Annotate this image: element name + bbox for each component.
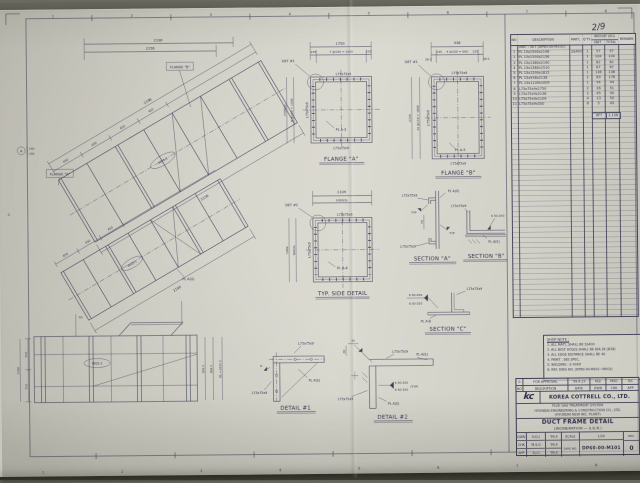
flange-a-det-callout: DET #1 xyxy=(282,59,295,63)
detail-2-dim-top: 30 xyxy=(351,339,355,343)
rev-value: 0 xyxy=(624,441,639,456)
flange-b-left-chain-dim: 12 @150 = 1800 xyxy=(416,105,420,131)
page-number-handwritten: 2/9 xyxy=(591,22,606,33)
detail-1-angle-left-label: L75x75x9 xyxy=(252,391,268,395)
title-block: 0 FOR APPROVAL '99.4.23 KDJ MSG SJC NO D… xyxy=(515,377,640,456)
flange-b-angle-bottom-label: L75x75x9 xyxy=(450,161,466,165)
scale-label: SCALE xyxy=(562,432,580,439)
flange-a-left-chain-dim: 8 @150 = 1200 xyxy=(290,98,294,122)
project-block: FLUE GAS TREATMENT SYSTEM HYUNDAI ENGINE… xyxy=(517,403,639,419)
section-c: 6 50-250 6 50-250 L75x75x9 PL A-B SECTIO… xyxy=(406,287,482,335)
dwg-no-label: DWG NO. xyxy=(562,440,580,456)
grid-ref-bottom-4: 4 xyxy=(279,468,281,472)
sign-app-date: '99.4 xyxy=(546,449,561,457)
flange-b-corner-dim-l: 28.5 xyxy=(425,57,431,61)
flange-a-title: FLANGE "A" xyxy=(324,157,358,163)
grid-ref-top-2: 2 xyxy=(131,14,133,18)
grid-ref-bottom-7: 7 xyxy=(516,464,518,468)
flange-a-angle-bottom-label: L75x75x9 xyxy=(333,146,349,150)
detail-2-weld-top: 6 50-250 xyxy=(395,381,409,385)
elev2-seg-dim-3: 450 xyxy=(107,225,114,231)
shop-note: SHOP NOTE : 1. ALL MAT'L SHALL BE SS4002… xyxy=(543,334,640,381)
sign-app-label: APP xyxy=(517,449,527,457)
rev-col-app: APP xyxy=(622,385,638,390)
elev2-seg-dim-1: 450 xyxy=(62,252,69,258)
sign-chk-name: M.S.G xyxy=(527,441,547,448)
section-a-angle-top-label: L75x75x9 xyxy=(402,194,418,198)
rev-col-dwn: DWN xyxy=(590,385,606,390)
typ-side-chain-dim: 1000(S) xyxy=(336,198,348,202)
elev2-tag: W03-1 xyxy=(127,259,138,268)
section-a-dim: 50 xyxy=(420,220,424,224)
scale-dwg-column: SCALE 1/20 DWG NO. DP60-00-M101 xyxy=(562,432,624,457)
bom-total-label: W'T xyxy=(593,113,607,119)
grid-ref-bottom-3: 3 xyxy=(200,469,202,473)
detail-1-angle-top-label: L75x75x9 xyxy=(298,342,314,346)
detail-2-plate-bottom-label: PL A(S) xyxy=(388,402,399,406)
signature-grid: DWN K.D.J '99.4 CHK M.S.G '99.4 APP S.J.… xyxy=(517,433,562,457)
approval-sign-3: SJC xyxy=(622,378,638,384)
typ-side-total-dim: 1109 xyxy=(337,190,347,194)
section-a-weld-right: TYP xyxy=(448,231,455,235)
project-line-3: (HYUNDAI NEW INC. PLANT) xyxy=(517,412,639,418)
section-c-weld-top: 6 50-250 xyxy=(409,293,423,297)
dwg-no-value: DP60-00-M101 xyxy=(580,446,623,451)
flange-b-chain-dim: 4 @150 = 600 xyxy=(446,50,468,54)
detail-2-dim-left: 30 xyxy=(342,350,346,354)
grid-ref-top-4: 4 xyxy=(289,12,291,16)
approval-label: FOR APPROVAL xyxy=(523,379,568,385)
elev1-seg-dim-3: 450 xyxy=(119,124,126,130)
section-c-title: SECTION "C" xyxy=(429,327,466,333)
section-b: L75x75x9 6 50-250 PL A(S) SECTION "B" xyxy=(451,204,507,262)
elev1-ref-dim-2: 150 xyxy=(29,152,35,156)
elev3-right-dim-2: 902.5 xyxy=(209,365,213,374)
flange-b-corner-dim-r: 28.5 xyxy=(483,57,489,61)
flange-a-plate-label: PL A-3 xyxy=(336,128,347,132)
flange-b-total-dim: 938 xyxy=(454,41,462,45)
detail-1-title: DETAIL #1 xyxy=(280,406,311,412)
bom-rows: UNIT : SET (DP60-00-M101) 1 PL 15x1500x2… xyxy=(511,44,636,107)
flange-b-left-total-dim: 2136 xyxy=(408,114,412,122)
detail-1-weld-note: 6 xyxy=(260,364,262,368)
bom-total-row: W'T 1,138 xyxy=(592,112,621,120)
section-c-weld-bottom: 6 50-250 xyxy=(409,301,423,305)
elev1-seg-dim-1: 450 xyxy=(62,158,69,164)
bom-header-description: DESCRIPTION xyxy=(517,35,569,45)
elev2-plate-label: PL A(S) xyxy=(182,277,195,281)
grid-ref-top-7: 7 xyxy=(526,10,528,14)
flange-a-angle-left-label: L75x75x9 xyxy=(305,102,309,118)
bom-header-weight-group: WEIGHT (KG) UNIT TOTAL xyxy=(591,34,618,44)
section-a-plate-label: PL A(S) xyxy=(448,189,459,193)
bom-header-remark: REMARK xyxy=(618,34,635,44)
elev1-seg-dim-4: 450 xyxy=(147,107,154,113)
typ-side-plate-label: PL A-6 xyxy=(337,266,348,270)
flange-a-total-dim: 1750 xyxy=(336,42,346,46)
grid-ref-top-6: 6 xyxy=(447,11,449,15)
section-a-angle-bottom-label: L75x75x9 xyxy=(400,245,416,249)
detail-2: 30 30 L75x75x9 PL A(S) 6 50-250 6 50-250… xyxy=(337,338,434,423)
typ-side-det-callout: DET #2 xyxy=(285,203,298,207)
grid-ref-top-1: 1 xyxy=(52,14,54,18)
scale-value: 1/20 xyxy=(580,432,623,439)
rev-col-chk: CHK xyxy=(606,385,622,390)
elev1-flange-a-callout: FLANGE "A" xyxy=(50,172,71,176)
section-a-weld-left: TYP xyxy=(410,211,417,215)
sign-dwn-date: '99.4 xyxy=(546,433,561,440)
section-c-angle-label: L75x75x9 xyxy=(467,287,483,291)
company-logo: kc xyxy=(516,391,540,404)
paper-sheet: 1 2 3 4 5 6 7 8 1 2 3 4 5 6 7 8 C 2/9 21… xyxy=(0,4,640,477)
detail-1: L75x75x9 PL A(S) L75x75x9 6 DETAIL #1 xyxy=(251,341,325,413)
section-b-angle-label: L75x75x9 xyxy=(451,204,467,208)
approval-sign-1: KDJ xyxy=(590,378,606,384)
flange-b-plate-label: PL A-5 xyxy=(455,148,466,152)
section-a: PL A(S) L75x75x9 L75x75x9 TYP TYP 50 SEC… xyxy=(400,189,460,264)
grid-ref-bottom-8: 8 xyxy=(595,463,597,467)
bom-header-matl: MAT'L xyxy=(569,34,582,44)
typ-side-detail: 1109 1000(S) 900(S) 1009 DET #2 L75x75x9… xyxy=(285,190,380,299)
flange-b-title: FLANGE "B" xyxy=(441,170,475,176)
grid-ref-bottom-6: 6 xyxy=(437,466,439,470)
detail-2-plate-top-label: PL A(S) xyxy=(416,352,427,356)
elev1-axis-dim: 2196 xyxy=(143,97,152,105)
flange-a-angle-top-label: L75x75x9 xyxy=(336,72,352,76)
grid-ref-top-8: 8 xyxy=(605,9,607,13)
elev2-seg-dim-2: 450 xyxy=(84,239,91,245)
sign-app-name: S.J.C xyxy=(527,449,547,457)
flange-b-angle-left-label: L75x75x9 xyxy=(426,110,430,126)
elev2-bottom-dim: 2190 xyxy=(172,285,181,293)
elev1-bottom-dim: 2156 xyxy=(200,194,209,202)
elevation-view-1: 2196 2156 450 450 450 450 2196 2156 xyxy=(16,35,315,264)
bom-row: 11 L75x75x9x500 8 5 43 xyxy=(512,101,636,107)
flange-b-end-dim-r: 135 xyxy=(472,49,478,53)
elev1-ref-bubble: A xyxy=(20,149,23,153)
rev-label: REV. xyxy=(624,432,639,441)
bom-table: NO DESCRIPTION MAT'L Q'TY WEIGHT (KG) UN… xyxy=(510,33,639,318)
detail-2-weld-bottom: 6 50-250 xyxy=(395,388,409,392)
bom-header-qty: Q'TY xyxy=(582,34,591,44)
detail-2-weld-typ: (TYP) xyxy=(410,385,418,389)
elev3-left-dim-1: 750 xyxy=(24,352,28,358)
flange-a-detail: 1750 135 7 @150 = 1050 135 8 @150 = 1200… xyxy=(282,41,381,165)
elev1-seg-dim-2: 450 xyxy=(91,141,98,147)
elev3-right-dim-3: EL.+1635.5 xyxy=(218,360,222,378)
elev3-tag: W02-1 xyxy=(92,362,102,366)
elev3-right-dim-1: 950.5 xyxy=(201,365,205,374)
drawing-subtitle: (INCINERATION — S.D.R.) xyxy=(517,425,639,431)
section-c-plate-label: PL A-B xyxy=(421,319,431,323)
flange-b-detail: 938 135 4 @150 = 600 135 28.5 28.5 12 @1… xyxy=(405,41,492,179)
title-block-bottom: DWN K.D.J '99.4 CHK M.S.G '99.4 APP S.J.… xyxy=(517,432,639,457)
flange-b-det-callout: DET #1 xyxy=(405,60,418,64)
elev1-dim-2196: 2196 xyxy=(154,38,163,42)
typ-side-left-chain-dim: 900(S) xyxy=(292,245,296,255)
shop-note-item: 6. REF. DWG NO. (DP60-00-M001~M003) xyxy=(547,367,640,373)
drawing-title-block: DUCT FRAME DETAIL (INCINERATION — S.D.R.… xyxy=(517,418,639,433)
sign-dwn-name: K.D.J xyxy=(527,433,547,440)
typ-side-angle-top-label: L75x75x9 xyxy=(337,213,353,217)
flange-a-end-dim-l: 135 xyxy=(310,50,316,54)
elev1-dim-2156: 2156 xyxy=(146,47,155,51)
grid-ref-bottom-2: 2 xyxy=(121,470,123,474)
grid-ref-top-3: 3 xyxy=(210,13,212,17)
kc-logo: kc xyxy=(523,391,534,403)
flange-a-left-total-dim: 1500(S) xyxy=(283,104,287,116)
section-b-title: SECTION "B" xyxy=(468,254,505,260)
approval-sign-2: MSG xyxy=(606,378,622,384)
sign-dwn-label: DWN xyxy=(517,433,527,440)
typ-side-left-total-dim: 1009 xyxy=(285,246,289,254)
flange-b-end-dim-l: 135 xyxy=(436,50,442,54)
section-a-title: SECTION "A" xyxy=(414,256,451,262)
elev3-left-total-dim: 1500 xyxy=(16,367,20,375)
detail-1-plate-label: PL A(S) xyxy=(309,378,320,382)
approval-date: '99.4.23 xyxy=(568,378,590,384)
bom-total-value: 1,138 xyxy=(606,113,620,119)
elev1-ref-dim-1: 150 xyxy=(29,147,35,151)
rev-column: REV. 0 xyxy=(624,432,639,456)
company-row: kc KOREA COTTRELL CO., LTD. xyxy=(516,391,638,404)
company-name: KOREA COTTRELL CO., LTD. xyxy=(540,390,638,403)
flange-a-end-dim-r: 135 xyxy=(366,49,372,53)
rev-col-date: DATE xyxy=(568,385,590,390)
sign-chk-date: '99.4 xyxy=(546,441,561,448)
elev3-stub-dim: 50 xyxy=(79,315,83,319)
section-b-weld-note: 6 50-250 xyxy=(491,214,505,218)
typ-side-title: TYP. SIDE DETAIL xyxy=(317,291,367,297)
detail-2-title: DETAIL #2 xyxy=(377,415,408,421)
elev3-left-dim-2: 750 xyxy=(24,384,28,390)
grid-ref-bottom-1: 1 xyxy=(42,471,44,475)
grid-ref-left-c: C xyxy=(8,213,11,217)
flange-a-chain-dim: 7 @150 = 1050 xyxy=(329,50,353,54)
approval-mark: 0 xyxy=(516,379,523,385)
elev1-flange-b-callout: FLANGE "B" xyxy=(170,65,191,69)
drawing-area: 1 2 3 4 5 6 7 8 1 2 3 4 5 6 7 8 C 2/9 21… xyxy=(0,0,640,483)
sign-chk-label: CHK xyxy=(517,441,527,448)
detail-2-angle-top-label: L75x75x9 xyxy=(392,350,408,354)
typ-side-angle-left-label: L75x75x9 xyxy=(308,242,312,258)
detail-2-angle-left-label: L75x75x9 xyxy=(338,397,354,401)
grid-ref-top-5: 5 xyxy=(368,11,370,15)
flange-b-angle-top-label: L75x75x9 xyxy=(452,71,468,75)
grid-ref-bottom-5: 5 xyxy=(358,467,360,471)
section-b-plate-label: PL A(S) xyxy=(488,240,499,244)
